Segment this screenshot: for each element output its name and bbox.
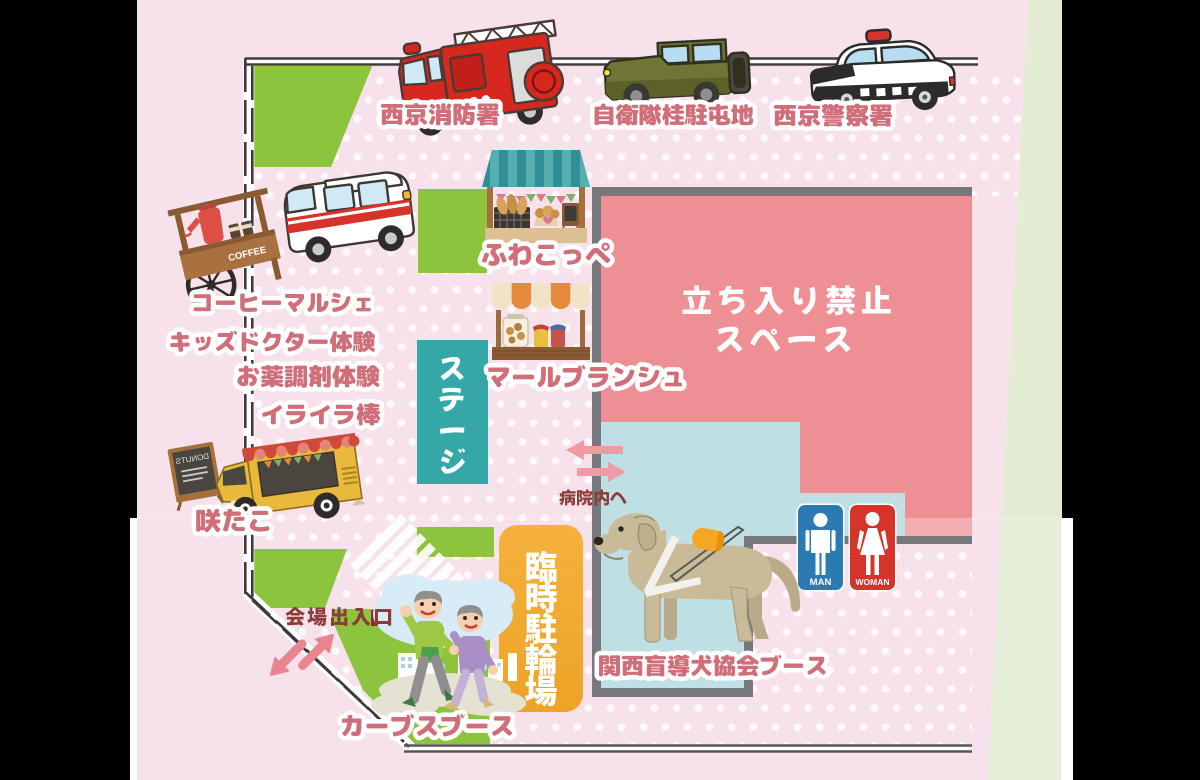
svg-text:WOMAN: WOMAN bbox=[856, 577, 890, 587]
svg-text:場: 場 bbox=[525, 665, 558, 713]
svg-text:会場出入口: 会場出入口 bbox=[285, 601, 395, 630]
svg-text:カーブスブース: カーブスブース bbox=[339, 708, 514, 743]
svg-text:咲たこ: 咲たこ bbox=[195, 503, 273, 539]
svg-text:コーヒーマルシェ: コーヒーマルシェ bbox=[191, 287, 375, 319]
svg-text:関西盲導犬協会ブース: 関西盲導犬協会ブース bbox=[598, 650, 828, 682]
svg-text:キッズドクター体験: キッズドクター体験 bbox=[169, 326, 376, 358]
svg-text:ジ: ジ bbox=[438, 441, 466, 481]
svg-text:西京消防署: 西京消防署 bbox=[380, 97, 500, 131]
svg-text:ふわこっぺ: ふわこっぺ bbox=[481, 237, 611, 273]
svg-text:スペース: スペース bbox=[714, 315, 858, 360]
svg-text:MAN: MAN bbox=[810, 577, 832, 588]
svg-text:自衛隊桂駐屯地: 自衛隊桂駐屯地 bbox=[593, 99, 754, 131]
svg-text:西京警察署: 西京警察署 bbox=[773, 98, 893, 132]
svg-text:病院内へ: 病院内へ bbox=[559, 484, 627, 509]
svg-text:お薬調剤体験: お薬調剤体験 bbox=[236, 359, 380, 393]
svg-text:マールブランシュ: マールブランシュ bbox=[486, 359, 686, 394]
svg-text:イライラ棒: イライラ棒 bbox=[260, 397, 381, 431]
